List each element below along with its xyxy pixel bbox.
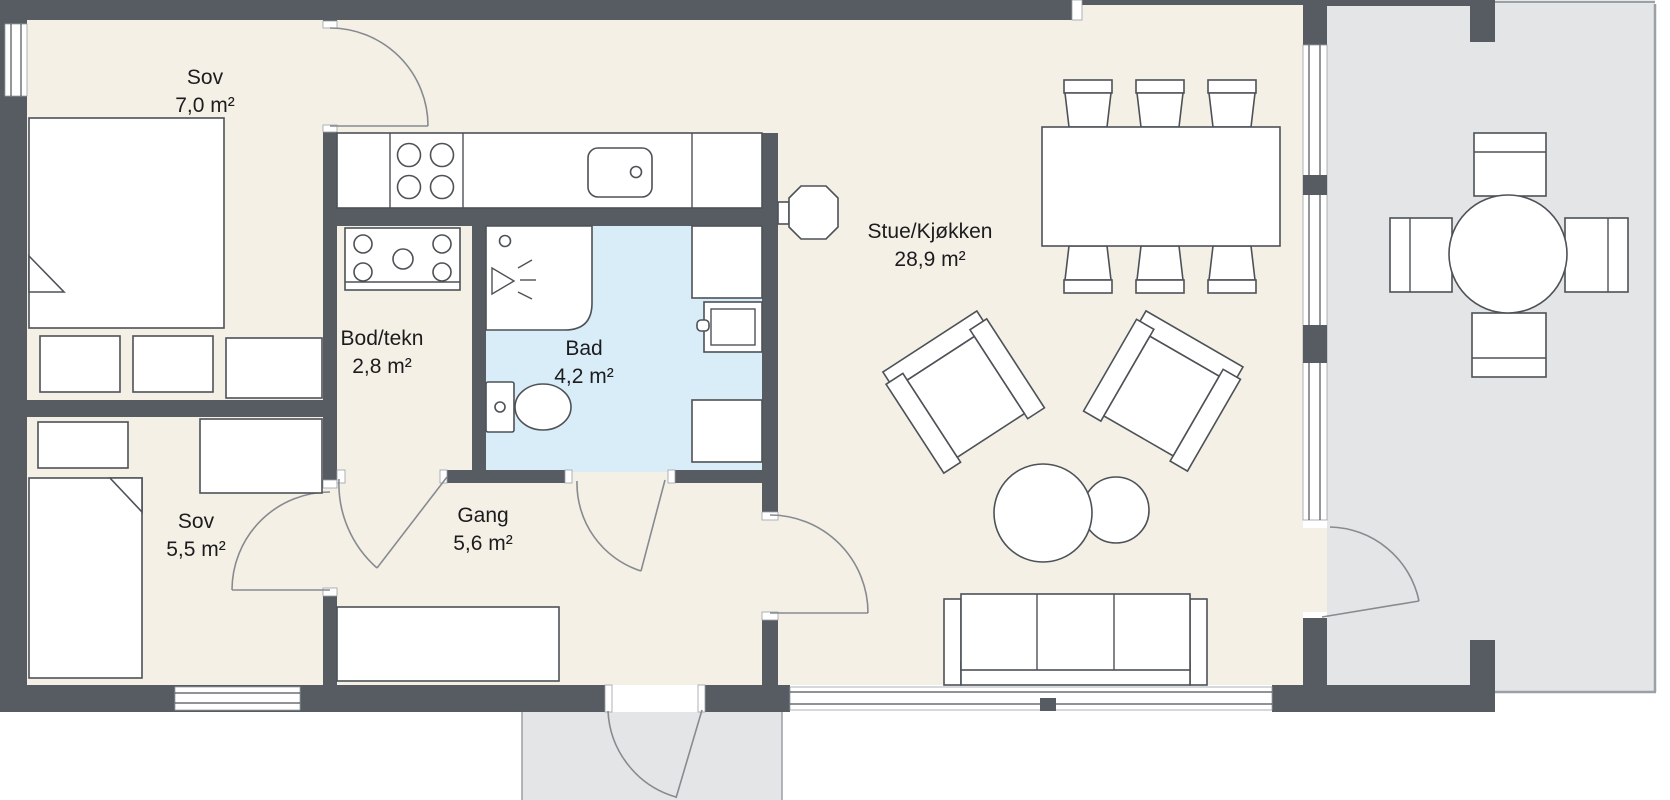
terrace-chair <box>1390 218 1452 292</box>
dining-chair <box>1136 80 1184 127</box>
room-label-gang-area: 5,6 m² <box>453 532 513 555</box>
right-window-band <box>1303 45 1327 520</box>
pillow <box>40 336 120 392</box>
dresser <box>226 338 322 398</box>
wall-a-mid <box>323 125 337 487</box>
terrace-chair <box>1565 218 1628 292</box>
coffee-table-large <box>994 464 1092 562</box>
terrace-chair <box>1472 313 1546 377</box>
wall-bottom-mid <box>705 685 790 712</box>
wall-top-thin <box>1082 0 1303 5</box>
sofa-cushions <box>961 594 1190 670</box>
room-label-sov2-area: 5,5 m² <box>166 538 226 561</box>
right-window-mullion <box>1303 325 1327 363</box>
hall-wardrobe <box>337 607 559 681</box>
bod-tekn-furniture <box>345 228 460 290</box>
wall-bad-bottom-left <box>447 470 572 483</box>
terrace-chair <box>1474 133 1546 196</box>
bathroom-cabinet-top <box>692 226 762 298</box>
floor-plan: Sov 7,0 m² Bod/tekn 2,8 m² Bad 4,2 m² St… <box>0 0 1670 800</box>
wall-gang-stue-top <box>762 133 778 512</box>
wall-right-top-stub <box>1303 0 1327 45</box>
dining-chair <box>1208 80 1256 127</box>
room-label-bad-name: Bad <box>565 337 602 360</box>
wall-left <box>0 0 27 712</box>
wall-a-bottom <box>323 588 337 685</box>
wall-bod-bad-divider <box>472 226 486 472</box>
bathroom-sink-cabinet <box>697 302 762 352</box>
right-window-mullion <box>1303 175 1327 195</box>
single-bed <box>29 478 142 678</box>
room-label-sov2-name: Sov <box>178 510 215 533</box>
room-label-bod-name: Bod/tekn <box>341 327 424 350</box>
window-mullion <box>1040 698 1056 711</box>
terrace-table <box>1449 195 1567 313</box>
room-label-bad-area: 4,2 m² <box>554 365 614 388</box>
wall-bedroom-divider <box>27 400 337 417</box>
wall-bottom-left <box>0 685 605 712</box>
dining-chair <box>1208 246 1256 293</box>
toilet <box>486 382 571 432</box>
window-bottom-living <box>790 687 1272 711</box>
double-bed <box>29 118 224 328</box>
wall-gang-stue-bottom <box>762 620 778 685</box>
room-label-sov1-area: 7,0 m² <box>175 94 235 117</box>
room-label-stue-area: 28,9 m² <box>894 248 965 271</box>
room-label-gang-name: Gang <box>457 504 508 527</box>
bathroom-cabinet-bottom <box>692 400 762 462</box>
nightstand <box>38 422 128 468</box>
room-label-bod-area: 2,8 m² <box>352 355 412 378</box>
wall-terrace-leg <box>1470 640 1495 685</box>
wall-bad-bottom-right <box>668 470 778 483</box>
wall-right-bottom-stub <box>1303 618 1327 685</box>
wardrobe <box>200 419 322 493</box>
floor-plan-canvas: Sov 7,0 m² Bod/tekn 2,8 m² Bad 4,2 m² St… <box>0 0 1670 800</box>
sofa <box>944 594 1207 685</box>
window-bottom-bedroom <box>175 687 300 710</box>
dining-chair <box>1064 246 1112 293</box>
terrace-wall-block <box>1470 0 1495 42</box>
wall-kitchen-back <box>323 208 778 226</box>
kitchen-sink <box>588 148 652 197</box>
sofa-arm <box>1190 599 1207 685</box>
wall-bottom-right <box>1272 685 1495 712</box>
pillow <box>133 336 213 392</box>
washing-machine <box>345 228 460 290</box>
hall-furniture <box>337 607 559 681</box>
window-left-wall <box>5 24 27 96</box>
dining-set <box>1042 80 1280 293</box>
coffee-table-small <box>1083 477 1149 543</box>
wall-top <box>0 0 1072 20</box>
terrace-door-opening <box>1303 528 1327 612</box>
room-label-sov1-name: Sov <box>187 66 224 89</box>
dining-table <box>1042 127 1280 246</box>
top-wall-jamb <box>1072 0 1082 20</box>
dining-chair <box>1136 246 1184 293</box>
terrace-wall-top <box>1327 0 1470 6</box>
sofa-arm <box>944 599 961 685</box>
dining-chair <box>1064 80 1112 127</box>
room-label-stue-name: Stue/Kjøkken <box>868 220 993 243</box>
kitchen-counter <box>337 133 762 208</box>
